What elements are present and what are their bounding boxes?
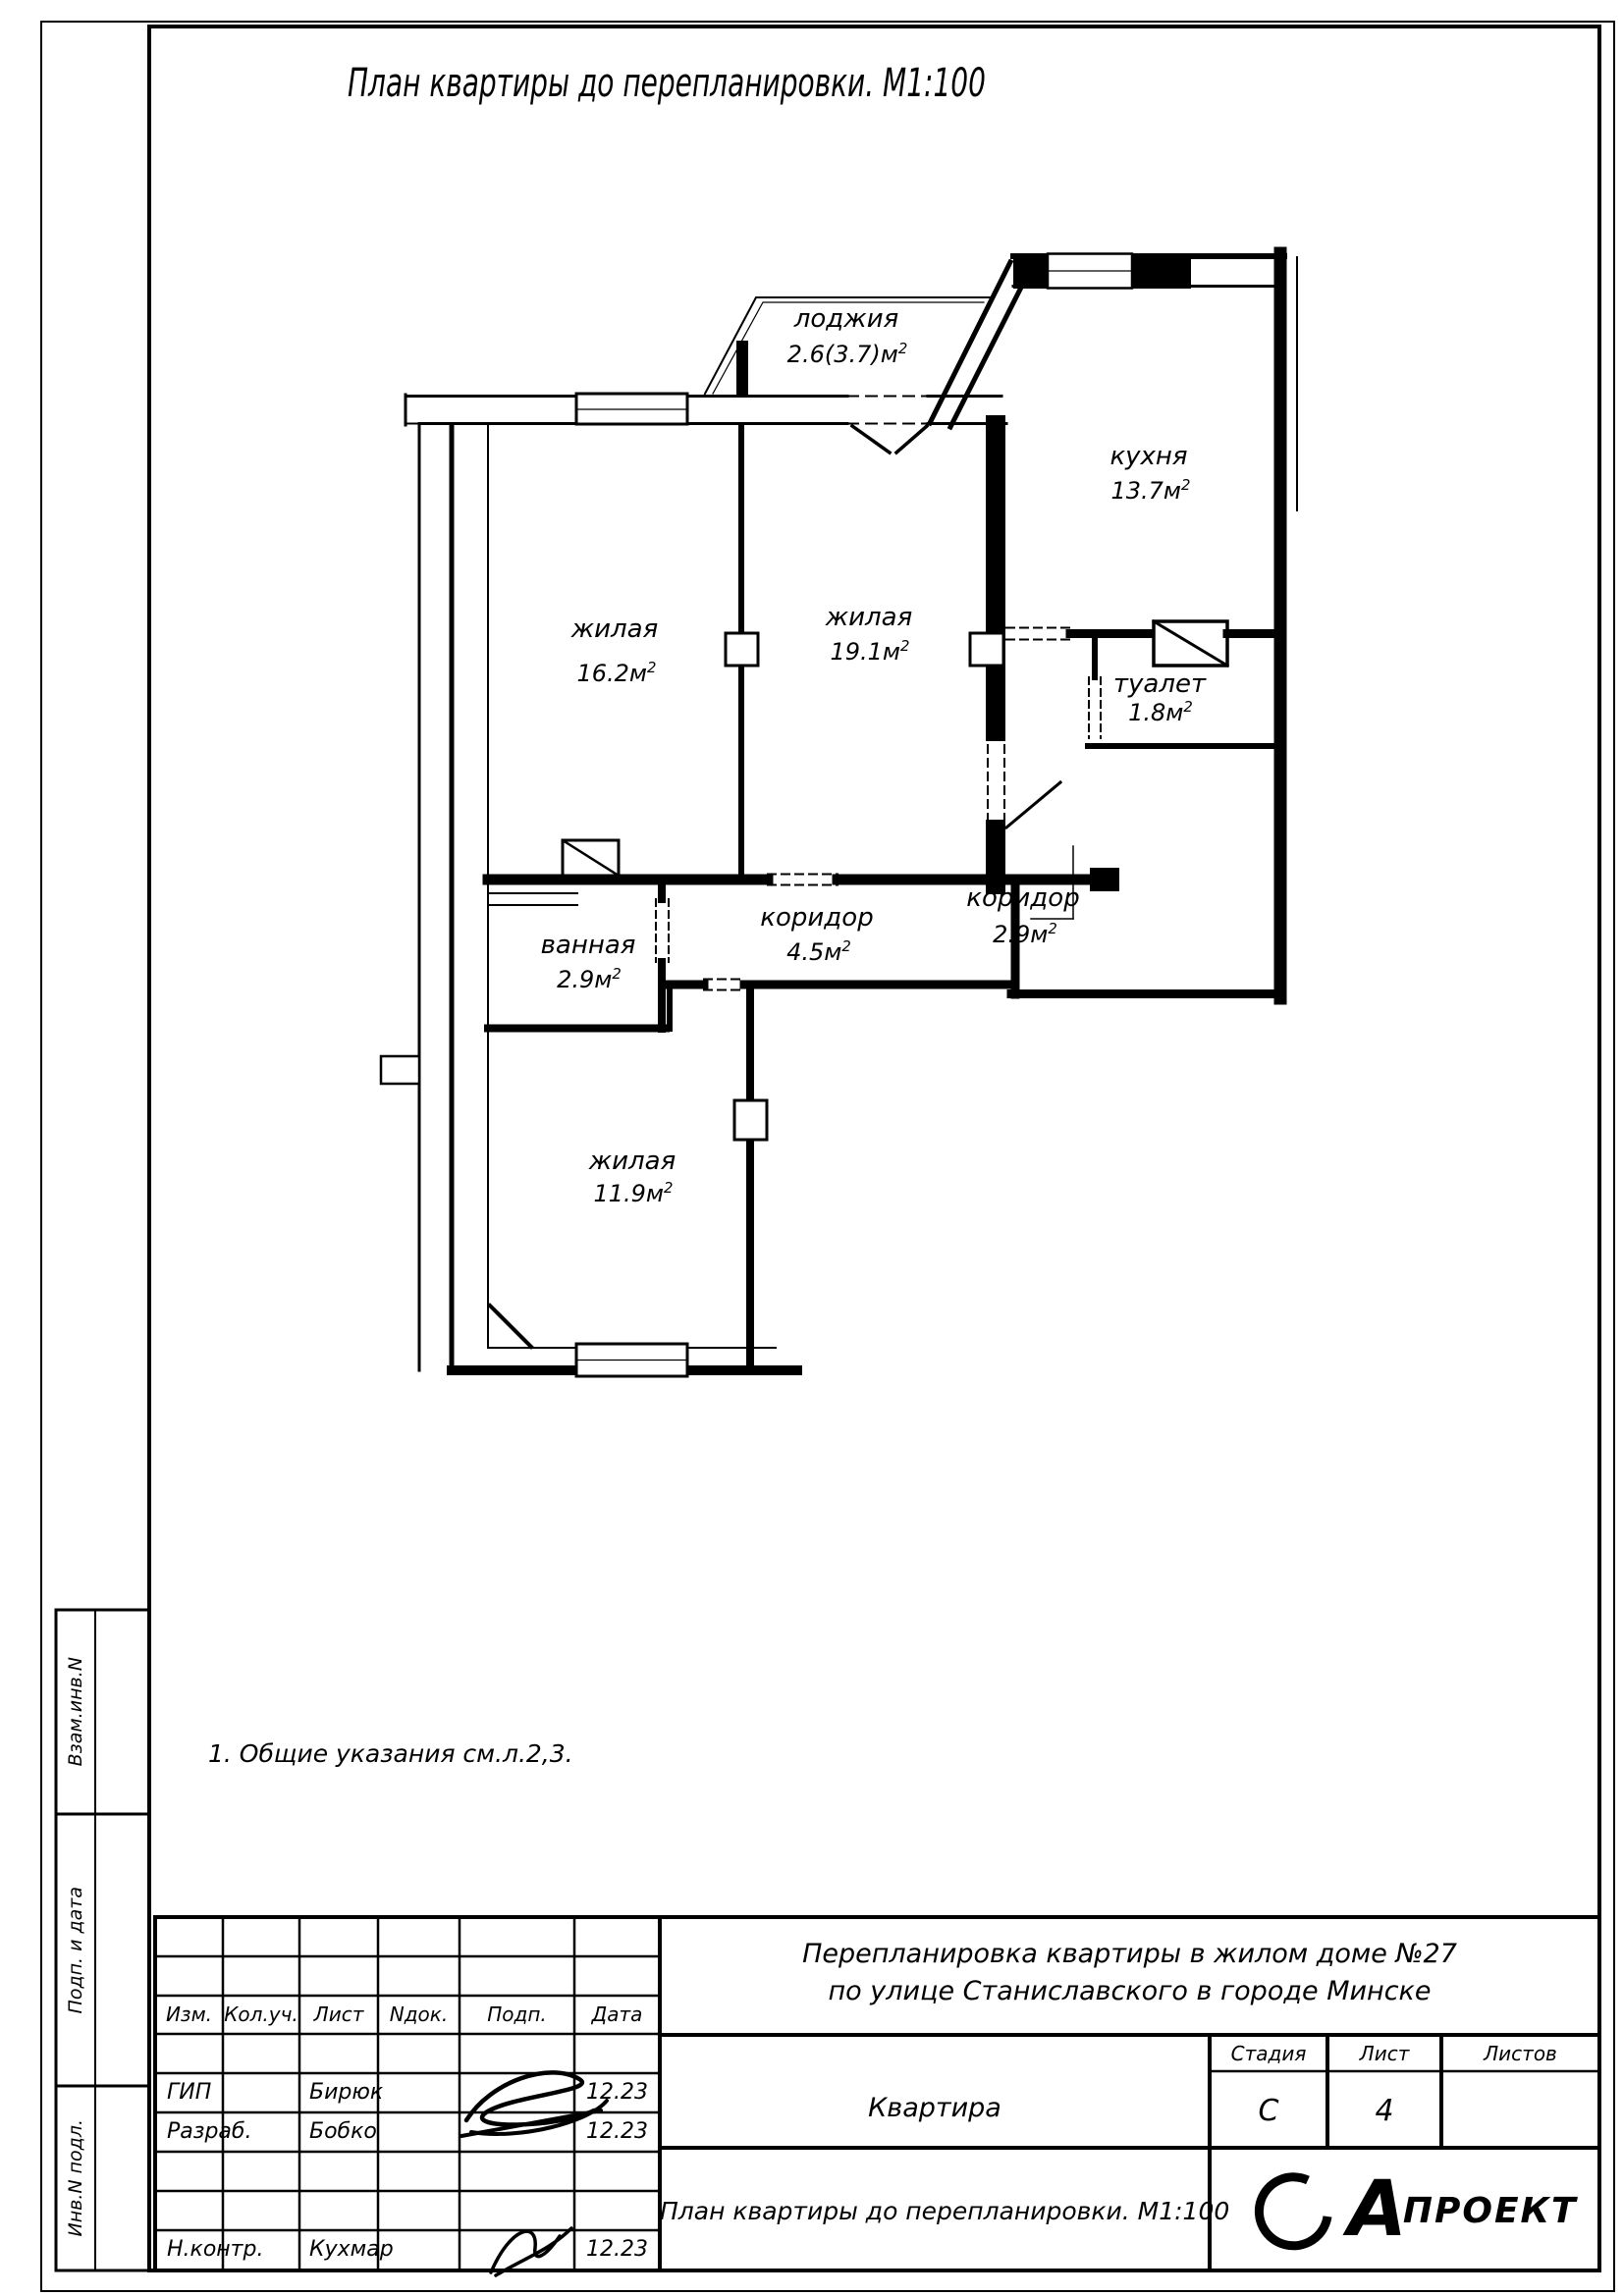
drawing-title: План квартиры до перепланировки. М1:100 bbox=[660, 2197, 1210, 2225]
room-label: лоджия bbox=[719, 304, 974, 334]
room-label: ванная bbox=[460, 931, 716, 960]
tb-role: ГИП bbox=[167, 2080, 211, 2105]
tb-date: 12.23 bbox=[574, 2237, 660, 2262]
room-area: 2.9м2 bbox=[897, 921, 1153, 948]
room-label: кухня bbox=[1021, 442, 1276, 471]
drawing-sheet: План квартиры до перепланировки. М1:100 … bbox=[0, 0, 1623, 2296]
tb-name: Кухмар bbox=[309, 2237, 394, 2262]
logo-text: ПРОЕКТ bbox=[1403, 2191, 1578, 2231]
tb-col-izm: Изм. bbox=[155, 2002, 223, 2026]
tb-role: Разраб. bbox=[167, 2119, 251, 2144]
sidebar-cell-podp: Подп. и дата bbox=[56, 1814, 95, 2086]
tb-name: Бирюк bbox=[309, 2080, 383, 2105]
sidebar-label: Подп. и дата bbox=[65, 1887, 86, 2013]
sidebar-label: Взам.инв.N bbox=[65, 1657, 86, 1766]
sheet-label: Лист bbox=[1327, 2042, 1441, 2065]
object-name: Квартира bbox=[660, 2093, 1210, 2123]
tb-col-podp: Подп. bbox=[460, 2002, 574, 2026]
sidebar-cell-vzam: Взам.инв.N bbox=[56, 1610, 95, 1814]
company-logo: А ПРОЕКТ bbox=[1229, 2160, 1597, 2263]
general-note: 1. Общие указания см.л.2,3. bbox=[208, 1739, 573, 1768]
room-label: туалет bbox=[1032, 669, 1287, 699]
room-label: жилая bbox=[505, 1147, 760, 1176]
tb-col-koluch: Кол.уч. bbox=[223, 2002, 299, 2026]
logo-swoosh-icon bbox=[1249, 2163, 1333, 2261]
tb-col-data: Дата bbox=[574, 2002, 660, 2026]
sidebar-label: Инв.N подл. bbox=[65, 2119, 86, 2237]
page-title: План квартиры до перепланировки. М1:100 bbox=[348, 61, 870, 106]
room-label: коридор bbox=[895, 883, 1151, 913]
tb-col-list: Лист bbox=[299, 2002, 378, 2026]
floor-plan-walls bbox=[381, 253, 1297, 1376]
room-area: 16.2м2 bbox=[489, 660, 744, 687]
room-area: 19.1м2 bbox=[742, 638, 998, 666]
tb-role: Н.контр. bbox=[167, 2237, 263, 2262]
room-area: 2.6(3.7)м2 bbox=[720, 341, 975, 368]
sheets-label: Листов bbox=[1441, 2042, 1599, 2065]
tb-col-ndok: Nдок. bbox=[378, 2002, 460, 2026]
stage-value: С bbox=[1210, 2094, 1327, 2128]
tb-date: 12.23 bbox=[574, 2080, 660, 2105]
room-area: 2.9м2 bbox=[461, 966, 717, 993]
project-description: Перепланировка квартиры в жилом доме №27… bbox=[665, 1936, 1595, 2010]
room-label: жилая bbox=[487, 614, 742, 644]
tb-name: Бобко bbox=[309, 2119, 377, 2144]
room-area: 13.7м2 bbox=[1023, 477, 1278, 505]
room-area: 1.8м2 bbox=[1033, 699, 1288, 726]
sheet-value: 4 bbox=[1327, 2094, 1441, 2128]
sidebar-cell-inv: Инв.N подл. bbox=[56, 2086, 95, 2270]
stage-label: Стадия bbox=[1210, 2042, 1327, 2065]
tb-date: 12.23 bbox=[574, 2119, 660, 2144]
room-area: 11.9м2 bbox=[506, 1180, 761, 1207]
logo-letter: А bbox=[1347, 2171, 1406, 2248]
room-label: жилая bbox=[741, 603, 997, 632]
